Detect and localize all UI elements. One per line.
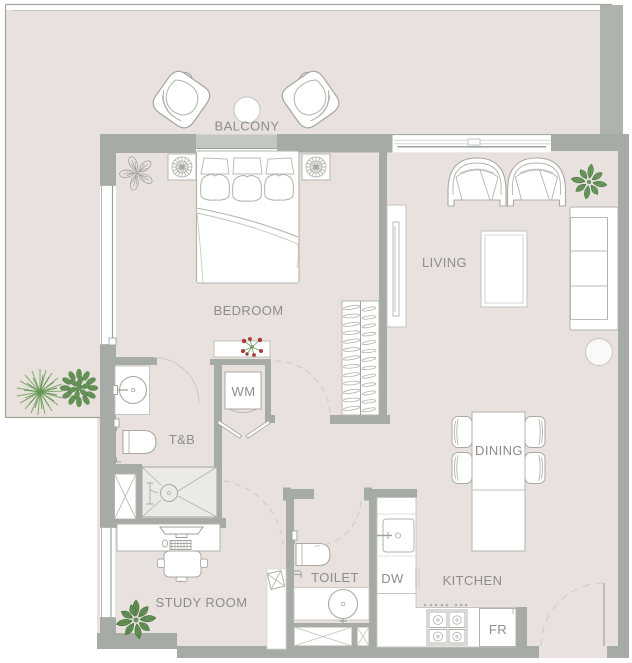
svg-text:T&B: T&B: [169, 432, 195, 447]
svg-text:KITCHEN: KITCHEN: [443, 573, 503, 588]
svg-text:STUDY ROOM: STUDY ROOM: [156, 595, 248, 610]
svg-text:WM: WM: [232, 384, 256, 399]
svg-text:DW: DW: [381, 571, 404, 586]
svg-text:BALCONY: BALCONY: [215, 119, 280, 134]
svg-text:LIVING: LIVING: [422, 255, 467, 270]
svg-text:BEDROOM: BEDROOM: [214, 303, 284, 318]
svg-text:DINING: DINING: [475, 443, 523, 458]
svg-text:FR: FR: [489, 622, 507, 637]
svg-text:TOILET: TOILET: [311, 570, 359, 585]
